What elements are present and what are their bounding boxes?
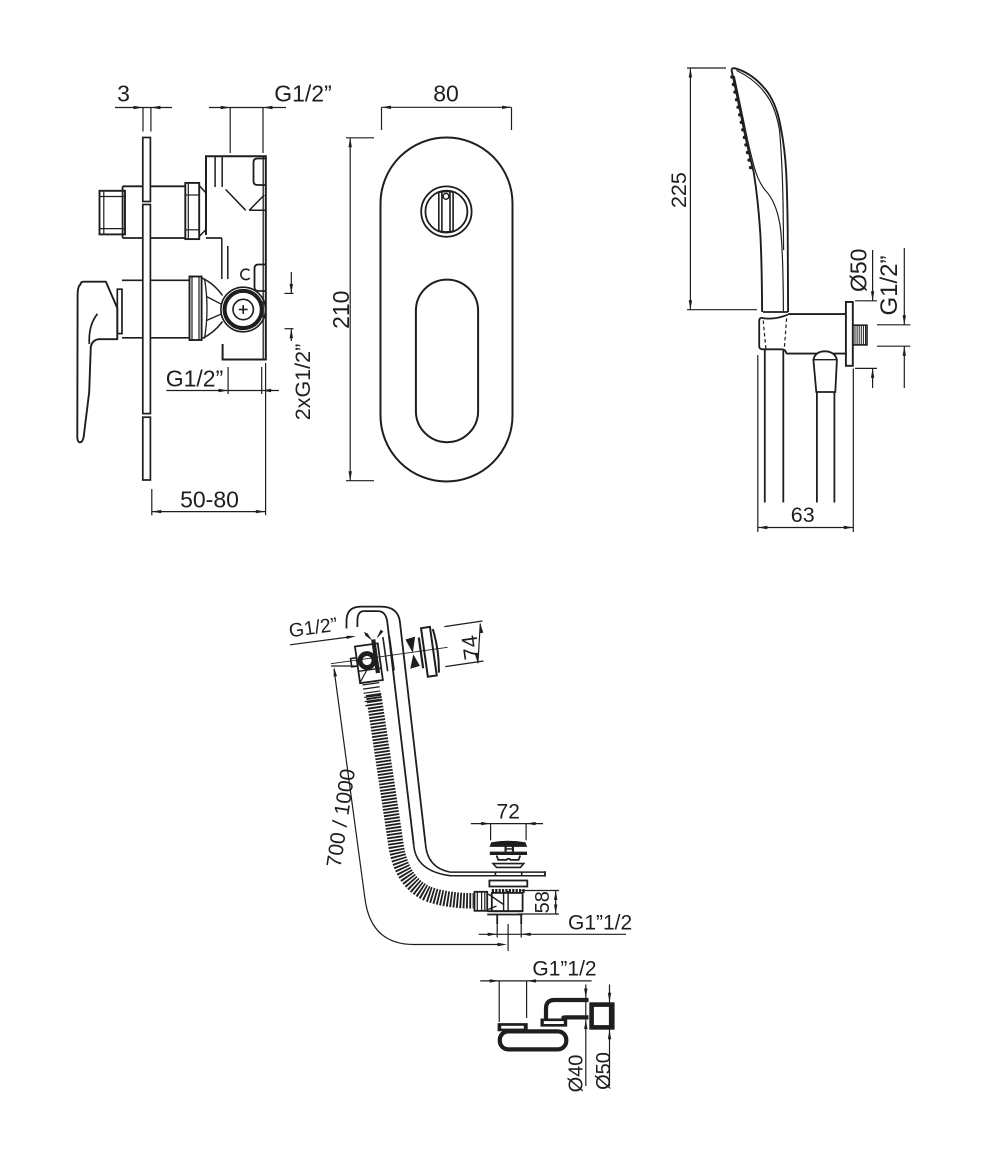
svg-text:74: 74 <box>456 634 484 662</box>
svg-text:80: 80 <box>433 81 459 107</box>
svg-text:G1/2”: G1/2” <box>166 365 224 391</box>
svg-text:G1/2”: G1/2” <box>274 81 332 107</box>
svg-text:2xG1/2”: 2xG1/2” <box>291 344 315 420</box>
svg-text:G1/2”: G1/2” <box>876 255 903 315</box>
svg-text:50-80: 50-80 <box>180 487 239 513</box>
svg-text:3: 3 <box>117 81 130 107</box>
svg-text:Ø50: Ø50 <box>845 249 871 292</box>
svg-text:72: 72 <box>497 801 520 824</box>
svg-text:Ø40: Ø40 <box>566 1055 588 1093</box>
svg-text:G1”1/2: G1”1/2 <box>532 958 596 981</box>
svg-text:G1”1/2: G1”1/2 <box>568 912 632 935</box>
svg-text:Ø50: Ø50 <box>593 1052 615 1090</box>
svg-text:58: 58 <box>532 891 554 913</box>
svg-text:G1/2”: G1/2” <box>287 614 338 643</box>
svg-text:225: 225 <box>667 172 691 208</box>
svg-text:63: 63 <box>791 503 815 527</box>
